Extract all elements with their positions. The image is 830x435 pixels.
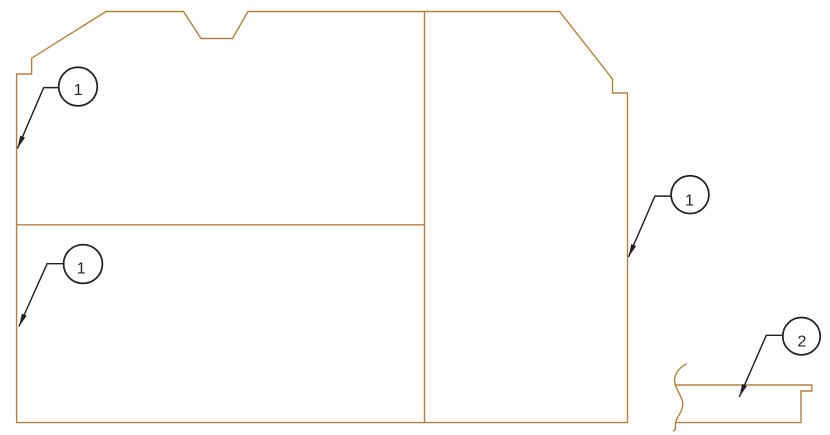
svg-text:2: 2	[797, 333, 806, 350]
svg-text:1: 1	[74, 82, 83, 99]
svg-text:1: 1	[685, 192, 694, 209]
svg-text:1: 1	[77, 261, 86, 278]
